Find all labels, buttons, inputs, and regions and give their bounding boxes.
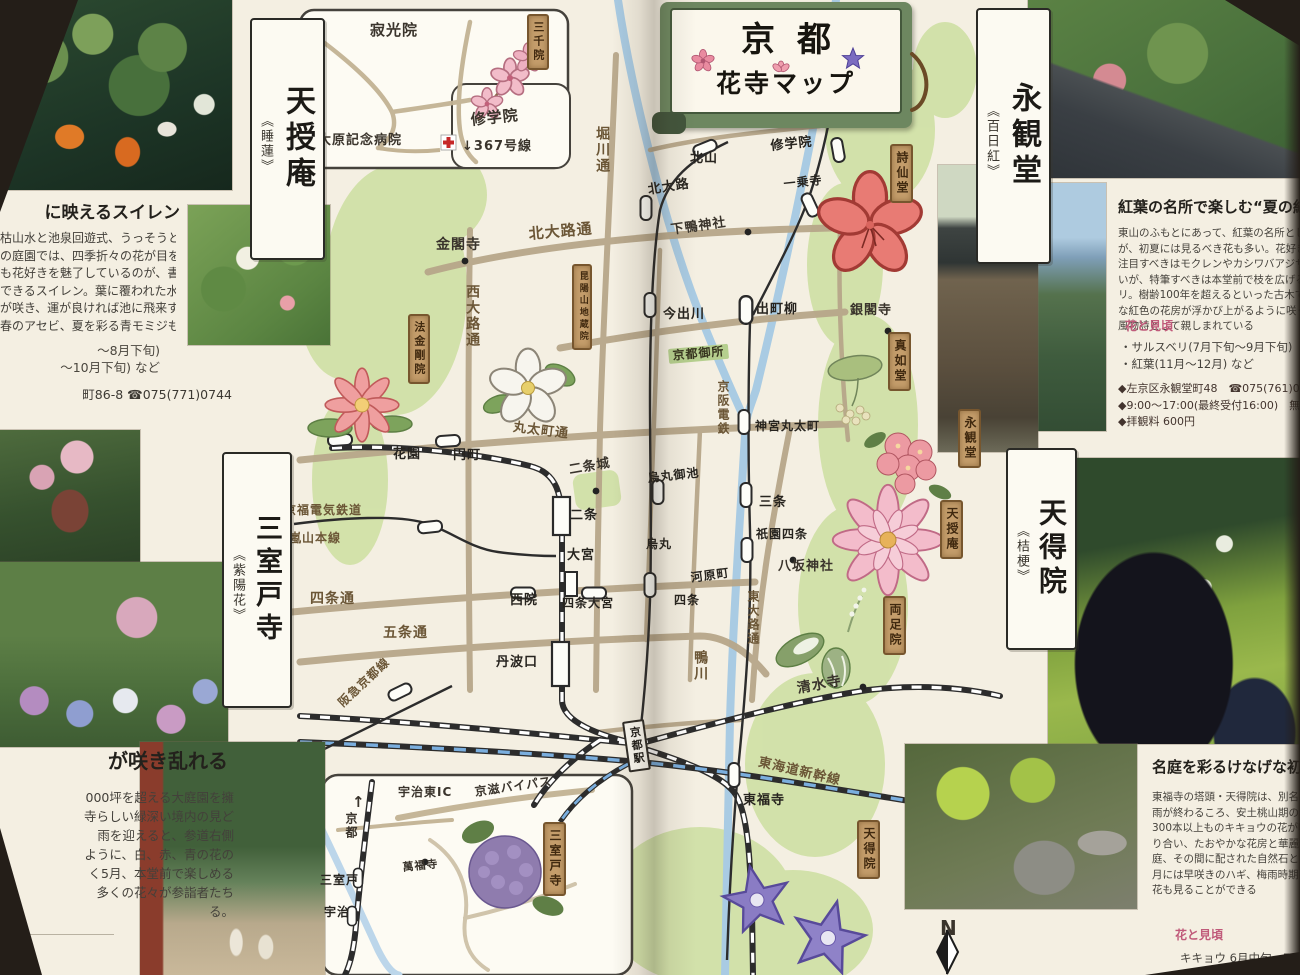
map-label: 下鴨神社 bbox=[670, 216, 727, 238]
text-line: 多くの花々が参詣者たち bbox=[0, 883, 234, 902]
map-label: 清水寺 bbox=[796, 674, 843, 697]
text-line: 東福寺の塔頭・天得院は、別名“桔梗 bbox=[1152, 790, 1300, 806]
map-label: N bbox=[940, 918, 958, 940]
temple-plaque-label: 真如堂 bbox=[888, 332, 911, 391]
tentokuin-flower: 《桔梗》 bbox=[1012, 524, 1031, 584]
map-label: 四条大宮 bbox=[562, 597, 614, 610]
text-line: ・サルスベリ(7月下旬〜9月下旬) bbox=[1120, 339, 1300, 356]
text-line: 〜10月下旬) など bbox=[0, 359, 160, 376]
magazine-spread: 堀川通北大路通西大路通丸太町通四条通五条通東大路通鴨川京阪電鉄京福電気鉄道嵐山本… bbox=[0, 0, 1300, 975]
map-label: 金閣寺 bbox=[436, 238, 481, 253]
map-label: 東海道新幹線 bbox=[757, 756, 842, 789]
tenjuan-contact: 町86-8 ☎075(771)0744 bbox=[0, 384, 232, 403]
mimurotoji-flower: 《紫陽花》 bbox=[228, 548, 247, 623]
map-label: 京福電気鉄道 bbox=[284, 504, 362, 517]
map-label: 神宮丸太町 bbox=[755, 420, 820, 433]
banner-bellflower-icon bbox=[838, 44, 868, 72]
map-label: 堀川通 bbox=[594, 126, 609, 174]
tentokuin-article-heading: 名庭を彩るけなげな初夏 bbox=[1152, 756, 1300, 782]
text-line: る。 bbox=[0, 902, 234, 921]
text-line: 枯山水と池泉回遊式、うっそうとした緑が bbox=[0, 230, 176, 248]
map-label: 東大路通 bbox=[746, 590, 759, 646]
map-label: 二条 bbox=[570, 509, 598, 523]
map-label: 修学院 bbox=[770, 136, 813, 154]
mimurotoji-article-heading: が咲き乱れる bbox=[0, 745, 228, 775]
tenjuan-title-plaque: 天授庵 《睡蓮》 bbox=[250, 18, 325, 260]
map-label: 北山 bbox=[690, 152, 718, 166]
banner-plum-icon bbox=[688, 46, 718, 76]
map-label: 四条 bbox=[674, 594, 700, 607]
map-label: 西院 bbox=[510, 594, 538, 608]
tentokuin-title-plaque: 天得院 《桔梗》 bbox=[1006, 448, 1077, 650]
map-label: 西大路通 bbox=[464, 284, 479, 348]
text-line: ように、白、赤、青の花の bbox=[0, 845, 234, 864]
text-line: ◆左京区永観堂町48 ☎075(761)0007 bbox=[1118, 381, 1300, 398]
map-label: 大宮 bbox=[567, 549, 595, 563]
text-line: 庭、その間に配された自然石と絶 bbox=[1152, 852, 1300, 868]
map-label: 丹波口 bbox=[496, 656, 538, 670]
map-label: ↓367号線 bbox=[462, 140, 532, 154]
text-line: 〜8月下旬) bbox=[0, 342, 160, 359]
temple-plaque-label: 三室戸寺 bbox=[543, 822, 566, 896]
map-label: 嵐山本線 bbox=[289, 532, 341, 545]
text-line: 寺らしい緑深い境内の見ど bbox=[0, 807, 234, 826]
eikando-bullets: ・サルスベリ(7月下旬〜9月下旬)・紅葉(11月〜12月) など bbox=[1120, 339, 1300, 372]
map-label: 京都御所 bbox=[668, 344, 729, 364]
map-label: 京都駅 bbox=[622, 719, 651, 773]
text-line: 花も見ることができる bbox=[1152, 883, 1300, 899]
text-line: 000坪を超える大庭園を擁 bbox=[0, 788, 234, 807]
tentokuin-article-body: 東福寺の塔頭・天得院は、別名“桔梗雨が終わるころ、安土桃山期の作と300本以上も… bbox=[1152, 790, 1300, 902]
mimurotoji-article-body: 000坪を超える大庭園を擁寺らしい緑深い境内の見ど雨を迎えると、参道右側ように、… bbox=[0, 788, 234, 924]
tenjuan-season-lines: 〜8月下旬)〜10月下旬) など bbox=[0, 342, 160, 376]
map-label: 北大路通 bbox=[528, 220, 593, 242]
map-label: 一乗寺 bbox=[783, 174, 823, 191]
scroll-roll-end bbox=[652, 112, 686, 134]
temple-plaque-label: 天授庵 bbox=[940, 500, 963, 559]
text-line: いが、特筆すべきは本堂前で枝を広げるサルスベ bbox=[1118, 273, 1300, 289]
tenjuan-article-heading: に映えるスイレン bbox=[0, 198, 180, 224]
map-label: 二条城 bbox=[568, 457, 612, 478]
map-label: 円町 bbox=[453, 449, 481, 463]
map-label: 出町柳 bbox=[756, 303, 798, 317]
text-line: ◆拝観料 600円 bbox=[1118, 414, 1300, 431]
temple-plaque-label: 三千院 bbox=[527, 14, 549, 70]
map-label: 宇治東IC bbox=[398, 786, 452, 799]
banner-lotus-icon bbox=[768, 58, 794, 82]
eikando-title-plaque: 永観堂 《百日紅》 bbox=[976, 8, 1051, 264]
map-label: 祇園四条 bbox=[756, 528, 808, 541]
map-label: 北大路 bbox=[647, 177, 691, 197]
text-line: できるスイレン。葉に覆われた水面に、点々 bbox=[0, 283, 176, 301]
map-label: 銀閣寺 bbox=[850, 304, 892, 318]
page-edge-shadow-right bbox=[1284, 0, 1300, 975]
eikando-flower: 《百日紅》 bbox=[982, 104, 1001, 179]
map-label: 京滋バイパス bbox=[474, 775, 553, 799]
mimurotoji-name: 三室戸寺 bbox=[247, 514, 286, 646]
map-label: 京阪電鉄 bbox=[716, 380, 729, 436]
scroll-hook-icon bbox=[908, 52, 934, 112]
magazine-spread-photo: 堀川通北大路通西大路通丸太町通四条通五条通東大路通鴨川京阪電鉄京福電気鉄道嵐山本… bbox=[0, 0, 1300, 975]
map-label: 烏丸御池 bbox=[647, 467, 700, 485]
map-label: 烏丸 bbox=[646, 538, 672, 551]
text-line: ◆9:00〜17:00(最終受付16:00) 無休 bbox=[1118, 398, 1300, 415]
temple-plaque-label: 両足院 bbox=[883, 596, 906, 655]
eikando-name: 永観堂 bbox=[1001, 82, 1045, 190]
mimurotoji-title-plaque: 三室戸寺 《紫陽花》 bbox=[222, 452, 292, 708]
map-label: 今出川 bbox=[663, 308, 705, 322]
text-line: 300本以上ものキキョウの花が咲 bbox=[1152, 821, 1300, 837]
text-line: の庭園では、四季折々の花が目を楽しませ bbox=[0, 248, 176, 266]
temple-plaque-label: 天得院 bbox=[857, 820, 880, 879]
map-label: 鴨川 bbox=[692, 650, 707, 682]
map-label: 東福寺 bbox=[743, 794, 785, 808]
text-line: リ。樹齢100年を超えるといった古木で、鮮やか bbox=[1118, 288, 1300, 304]
map-label: 萬福寺 bbox=[402, 858, 439, 874]
map-label: 京都 bbox=[344, 812, 357, 840]
text-line: り合い、たおやかな花房と華麗な bbox=[1152, 837, 1300, 853]
eikando-info: ◆左京区永観堂町48 ☎075(761)0007◆9:00〜17:00(最終受付… bbox=[1118, 381, 1300, 431]
text-line: が、初夏には見るべき花も多い。花好きなら bbox=[1118, 242, 1300, 258]
text-line: 東山のふもとにあって、紅葉の名所として知られる bbox=[1118, 226, 1300, 242]
text-line: も花好きを魅了しているのが、書院南庭の bbox=[0, 265, 176, 283]
text-line: く5月、本堂前で楽しめる bbox=[0, 864, 234, 883]
text-line: 雨が終わるころ、安土桃山期の作と bbox=[1152, 806, 1300, 822]
map-label: 大原記念病院 bbox=[318, 134, 402, 148]
map-label: 丸太町通 bbox=[512, 421, 569, 442]
temple-plaque-label: 詩仙堂 bbox=[890, 144, 913, 203]
eikando-season-tag: 花と見頃 bbox=[1125, 317, 1205, 334]
text-line: 春のアセビ、夏を彩る青モミジもおすす bbox=[0, 318, 176, 336]
tentokuin-name: 天得院 bbox=[1031, 498, 1071, 600]
text-line: 月には早咲きのハギ、梅雨時期の bbox=[1152, 868, 1300, 884]
map-label: ↑ bbox=[352, 794, 366, 810]
map-label: 三条 bbox=[759, 496, 787, 510]
tentokuin-season-tag: 花と見頃 bbox=[1175, 926, 1255, 943]
map-label: 宇治 bbox=[324, 906, 350, 919]
text-line: 注目すべきはモクレンやカシワバアジサイ、美し bbox=[1118, 257, 1300, 273]
map-label: 八坂神社 bbox=[778, 560, 834, 574]
map-label: 四条通 bbox=[310, 592, 355, 607]
map-label: 寂光院 bbox=[370, 22, 418, 38]
tenjuan-name: 天授庵 bbox=[275, 85, 319, 193]
map-label: 阪急京都線 bbox=[336, 656, 392, 710]
text-line: 雨を迎えると、参道右側 bbox=[0, 826, 234, 845]
title-banner-scroll: 京都 花寺マップ bbox=[660, 2, 912, 128]
temple-plaque-label: 昆陽山地蔵院 bbox=[572, 264, 592, 350]
text-line: が咲き、運が良ければ池に飛来するサギ bbox=[0, 300, 176, 318]
text-line: ・紅葉(11月〜12月) など bbox=[1120, 356, 1300, 373]
temple-plaque-label: 法金剛院 bbox=[408, 314, 430, 384]
temple-plaque-label: 永観堂 bbox=[958, 409, 981, 468]
tenjuan-flower: 《睡蓮》 bbox=[256, 114, 275, 174]
tenjuan-article-body: 枯山水と池泉回遊式、うっそうとした緑がの庭園では、四季折々の花が目を楽しませも花… bbox=[0, 230, 176, 340]
map-label: 花園 bbox=[393, 448, 421, 462]
map-label: 三室戸 bbox=[320, 874, 359, 887]
map-label: 五条通 bbox=[383, 626, 428, 641]
map-label: 河原町 bbox=[690, 567, 730, 585]
map-label: 修学院 bbox=[470, 107, 519, 128]
eikando-article-heading: 紅葉の名所で楽しむ“夏の紅” bbox=[1118, 196, 1300, 220]
